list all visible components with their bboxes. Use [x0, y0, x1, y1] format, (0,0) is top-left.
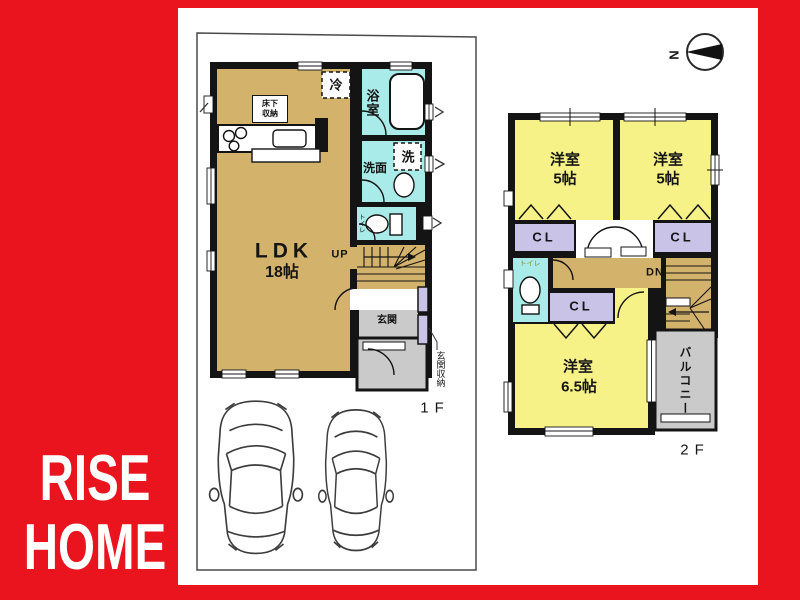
f1-entrance-storage-upper: [418, 287, 428, 312]
stairs-up-label: UP: [331, 250, 348, 261]
kitchen-shelf: [252, 149, 320, 162]
closet2-label: CL: [670, 231, 693, 244]
brand-line-2: HOME: [24, 509, 167, 584]
f2-toilet-bowl-icon: [520, 277, 540, 303]
balcony-label: バルコニー: [679, 346, 691, 416]
f2-stair-landing: [666, 298, 690, 306]
bedroom3-size-label: 6.5帖: [561, 380, 597, 395]
bedroom3-name-label: 洋室: [563, 360, 593, 375]
entrance-label: 玄関: [377, 316, 397, 326]
floor1-label: 1F: [420, 401, 450, 416]
f1-toilet-bowl-icon: [366, 215, 388, 233]
washer-label: 洗: [401, 151, 414, 164]
f2-threshold-2: [621, 247, 646, 256]
bedroom1-size-label: 5帖: [553, 172, 576, 187]
underfloor-storage-label: 床下 収納: [252, 95, 288, 123]
closet1-label: CL: [532, 231, 555, 244]
ldk-size-label: 18帖: [265, 265, 299, 281]
f2-threshold-1: [585, 248, 611, 257]
washroom-label: 洗面: [363, 162, 387, 174]
poster-background: RISE HOME: [0, 0, 800, 600]
f1-toilet-tank-icon: [390, 214, 402, 235]
washbasin-icon: [394, 173, 414, 197]
f2-toilet-tank-icon: [522, 305, 539, 314]
f2-hallway-floor: [553, 258, 661, 288]
bathtub-icon: [390, 74, 424, 129]
kitchen-sink-icon: [273, 130, 306, 147]
f2-bedroom3-upper: [615, 288, 648, 324]
entrance-storage-label: 玄関収納: [436, 351, 445, 387]
underfloor-storage-line1: 床下: [262, 99, 278, 109]
f2-bedroom3-floor: [515, 324, 648, 428]
f2-toilet-label: トイレ: [520, 261, 541, 268]
f1-toilet-label: トイレ: [357, 213, 364, 233]
bedroom2-size-label: 5帖: [656, 172, 679, 187]
ldk-label: LDK: [255, 241, 313, 262]
f1-hall-floor: [357, 289, 425, 310]
underfloor-storage-line2: 収納: [262, 109, 278, 119]
floorplan-panel: 冷 床下 収納 浴室 洗 洗面 トイレ LDK 18帖 UP 玄関 玄関収納 1…: [178, 8, 758, 585]
f1-entrance-storage-lower: [418, 315, 428, 344]
closet3-label: CL: [569, 300, 592, 313]
brand-line-1: RISE: [40, 440, 151, 515]
stairs-down-label: DN: [646, 268, 664, 279]
f1-hall-opening: [350, 289, 357, 310]
kitchen-wall-stub: [315, 118, 328, 152]
bath-label: 浴室: [366, 89, 379, 117]
bedroom2-name-label: 洋室: [653, 153, 683, 168]
f1-stairs-opening: [350, 247, 357, 269]
compass-north-letter: N: [668, 50, 681, 59]
floor1-plan: [200, 62, 444, 390]
bedroom1-name-label: 洋室: [550, 153, 580, 168]
fridge-label: 冷: [329, 79, 342, 92]
compass: [686, 34, 723, 70]
floor2-label: 2F: [680, 443, 710, 458]
